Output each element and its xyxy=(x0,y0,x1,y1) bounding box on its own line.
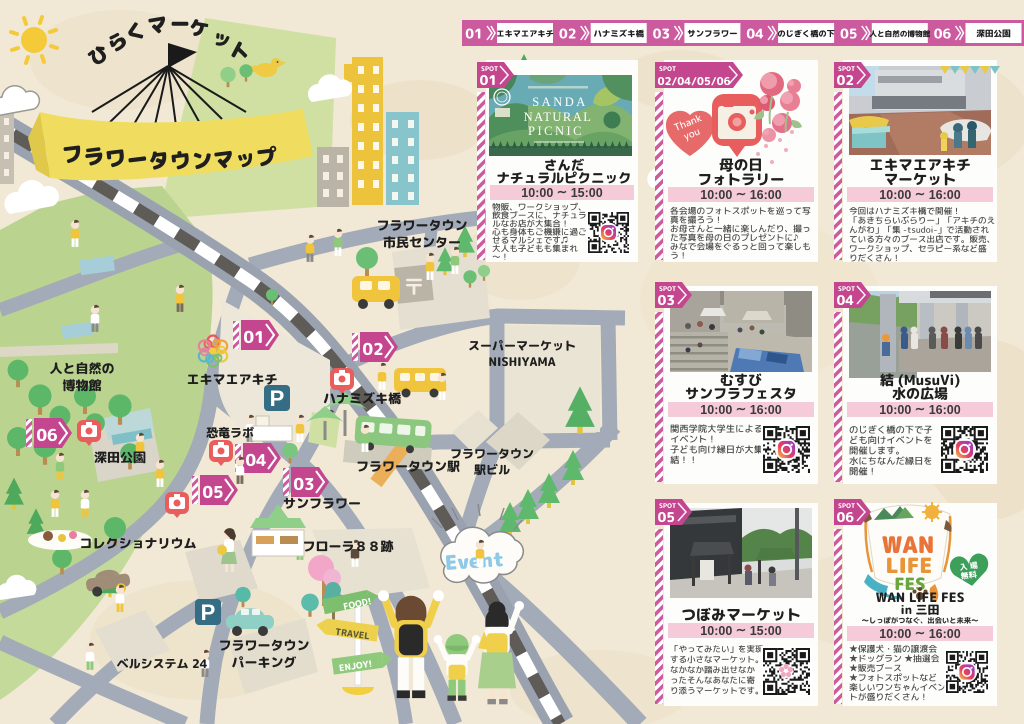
svg-text:SANDA: SANDA xyxy=(532,95,588,109)
svg-text:10:00 ∼ 16:00: 10:00 ∼ 16:00 xyxy=(700,402,781,417)
svg-text:10:00 ∼ 15:00: 10:00 ∼ 15:00 xyxy=(700,623,781,638)
svg-text:10:00 ∼ 15:00: 10:00 ∼ 15:00 xyxy=(521,185,602,200)
svg-text:P: P xyxy=(270,386,285,411)
svg-text:10:00 ∼ 16:00: 10:00 ∼ 16:00 xyxy=(879,187,960,202)
svg-text:P: P xyxy=(201,600,216,625)
svg-text:10:00 ∼ 16:00: 10:00 ∼ 16:00 xyxy=(879,402,960,417)
svg-text:NATURAL: NATURAL xyxy=(524,110,593,124)
svg-text:10:00 ∼ 16:00: 10:00 ∼ 16:00 xyxy=(879,626,960,641)
svg-text:PICNIC: PICNIC xyxy=(528,124,584,138)
svg-text:10:00 ∼ 16:00: 10:00 ∼ 16:00 xyxy=(700,187,781,202)
